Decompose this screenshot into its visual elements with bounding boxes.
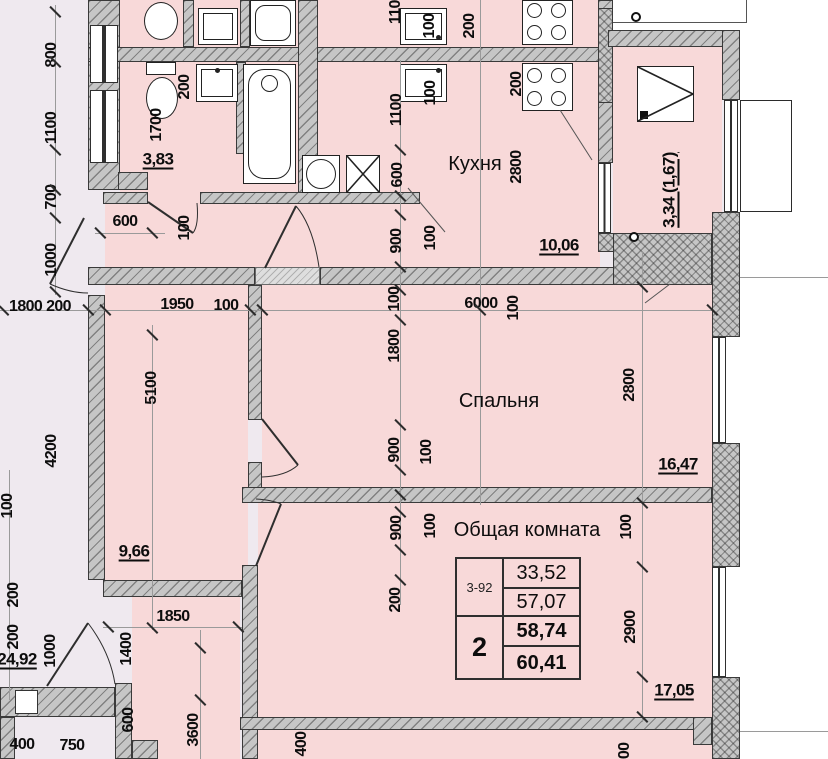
window-left-2: [90, 90, 118, 163]
wall-upper-bath-div1: [183, 0, 194, 47]
dimension-label: 900: [387, 438, 403, 463]
dimension-label: 200: [388, 588, 404, 613]
wall-left-lower: [88, 295, 105, 580]
room-label: Кухня: [448, 154, 502, 174]
wall-right-seg2: [712, 443, 740, 567]
door-entry-arc: [88, 623, 115, 684]
dimension-label: 100: [423, 226, 439, 251]
window-kitchen-balcony: [598, 163, 611, 233]
washing-machine: [346, 155, 380, 193]
dimension-label: 200: [6, 625, 22, 650]
hallway-floor: [105, 285, 248, 580]
area-label: 24,92: [0, 651, 37, 668]
dimension-label: 1400: [119, 632, 135, 665]
dimension-label: 100: [419, 440, 435, 465]
area-label: 17,05: [654, 682, 694, 699]
dimension-label: 1000: [43, 634, 59, 667]
dimension-label: 100: [506, 296, 522, 321]
dimension-label: 400: [294, 732, 310, 757]
dimension-label: 100: [422, 14, 438, 39]
window-balcony-right: [724, 100, 738, 212]
wall-balcony-right-upper: [722, 30, 740, 100]
dimension-label: 200: [462, 14, 478, 39]
bathtub: [243, 64, 296, 184]
area-label: 9,66: [119, 543, 150, 560]
room-label: Общая комната: [454, 520, 601, 540]
window-living-room: [712, 567, 726, 677]
bathtub-drain: [261, 75, 278, 92]
basin-box: [302, 155, 340, 193]
dimension-label: 100: [423, 514, 439, 539]
wall-main-horiz-left: [88, 267, 255, 285]
entry-door-gap: [15, 690, 38, 714]
balcony-outline-top: [613, 22, 747, 23]
sink-bathroom: [196, 64, 238, 102]
dimension-label: 100: [214, 298, 239, 314]
basin-bowl: [306, 159, 336, 189]
dimension-label: 5100: [144, 371, 160, 404]
floor-plan: 3-92 33,52 57,07 2 58,74 60,41 КухняСпал…: [0, 0, 828, 759]
stove-upper: [522, 0, 573, 45]
axis-line-v480: [480, 0, 481, 505]
dim-line-h627: [103, 627, 242, 628]
bedroom-floor: [262, 285, 712, 487]
slab-line-right-bottom: [740, 731, 828, 732]
dimension-label: 1100: [388, 0, 404, 24]
area-label: 3,83: [143, 151, 174, 168]
stove: [522, 63, 573, 111]
dimension-label: 200: [6, 583, 22, 608]
spec-total-balcony: 60,41: [503, 646, 580, 679]
dimension-label: 100: [423, 81, 439, 106]
spec-code: 3-92: [456, 558, 503, 616]
slab-line-right-top: [740, 277, 828, 278]
dimension-label: 600: [113, 214, 138, 230]
wall-hall-bottom: [103, 580, 242, 597]
dimension-label: 1950: [160, 297, 193, 313]
dimension-label: 750: [60, 738, 85, 754]
dimension-label: 3600: [186, 713, 202, 746]
dimension-label: 1100: [389, 94, 405, 126]
dimension-label: 4200: [44, 434, 60, 467]
wall-top-horizontal: [88, 47, 612, 62]
spec-total-area: 58,74: [503, 616, 580, 646]
dimension-label: 2800: [622, 368, 638, 401]
dimension-label: 100: [619, 515, 635, 540]
area-label: 10,06: [539, 237, 579, 254]
wall-upper-bath-div2: [240, 0, 250, 47]
wall-living-bottom: [240, 717, 740, 730]
window-bedroom: [712, 337, 726, 443]
dimension-label: 1850: [156, 609, 189, 625]
wall-balcony-top: [608, 30, 740, 47]
area-label: 16,47: [658, 456, 698, 473]
wall-bottom-stub: [132, 740, 158, 759]
dimension-label: 1100: [44, 112, 60, 144]
spec-rooms-count: 2: [456, 616, 503, 679]
balcony-outline-side: [746, 0, 747, 23]
wall-balcony-left-insul: [598, 8, 613, 103]
dimension-label: 1800 200: [9, 299, 71, 315]
lower-apartment-floor: [258, 730, 726, 759]
balcony-window-symbol: [637, 66, 694, 122]
dimension-label: 600: [390, 163, 406, 188]
wall-left-stub: [118, 172, 148, 190]
spec-living-area: 33,52: [503, 558, 580, 588]
dimension-label: 600: [121, 708, 137, 733]
area-label: 3,34 (1,67): [661, 152, 678, 228]
dimension-label: 200: [177, 75, 193, 100]
wall-right-stub: [693, 717, 712, 745]
toilet-tank: [146, 62, 176, 75]
wall-corner-block: [613, 233, 712, 285]
balcony-window-latch: [640, 111, 648, 119]
bathtub-upper: [250, 0, 296, 46]
apartment-spec-table: 3-92 33,52 57,07 2 58,74 60,41: [455, 557, 581, 680]
dim-line-v642: [642, 252, 643, 722]
dimension-label: 100: [0, 494, 16, 519]
dimension-label: 1000: [44, 243, 60, 276]
spec-area: 57,07: [503, 588, 580, 616]
dimension-label: 1800: [387, 329, 403, 362]
toilet-upper: [144, 2, 178, 40]
dimension-label: 100: [177, 216, 193, 241]
vent-circle-bottom: [629, 232, 639, 242]
sink-upper: [198, 8, 238, 45]
room-label: Спальня: [459, 391, 539, 411]
balcony-railing: [740, 100, 792, 212]
outside-top-right-area: [598, 0, 728, 30]
wall-bath-bottom-right: [200, 192, 420, 204]
wall-right-seg1: [712, 212, 740, 337]
dimension-label: 200: [509, 72, 525, 97]
wall-bath-bottom-left: [103, 192, 148, 204]
wall-right-seg3: [712, 677, 740, 759]
dimension-label: 2800: [509, 150, 525, 183]
lintel-corridor-door: [255, 267, 320, 285]
dimension-label: 100: [617, 743, 633, 759]
dimension-label: 900: [389, 229, 405, 254]
dimension-label: 2900: [623, 610, 639, 643]
window-left-1: [90, 25, 118, 83]
vent-circle-top: [631, 12, 641, 22]
dimension-label: 400: [10, 737, 35, 753]
dimension-label: 1700: [149, 108, 165, 141]
dimension-label: 900: [389, 516, 405, 541]
